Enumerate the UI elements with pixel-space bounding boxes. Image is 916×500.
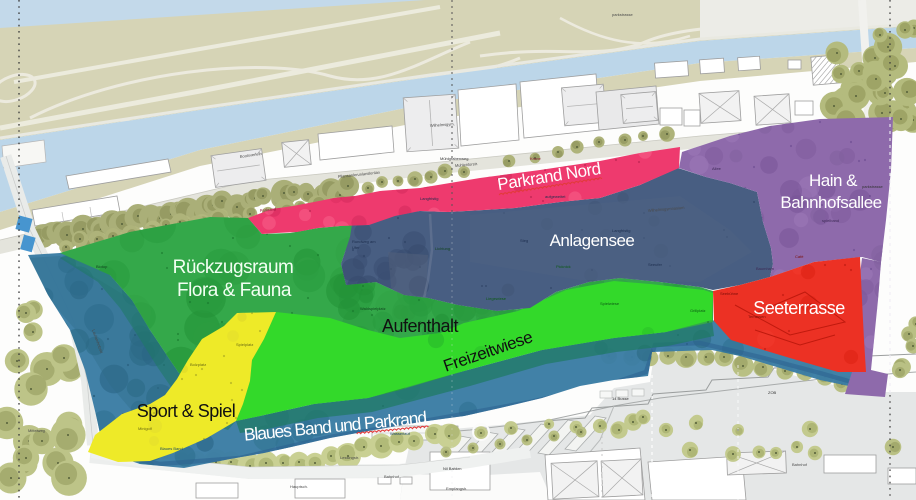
svg-text:Ufer: Ufer [352, 245, 360, 250]
svg-text:Nil Bahkrn: Nil Bahkrn [443, 466, 461, 471]
svg-text:14 Busse: 14 Busse [612, 396, 629, 401]
svg-text:Bahnhofsallee: Bahnhofsallee [780, 193, 881, 212]
svg-text:Flora & Fauna: Flora & Fauna [177, 280, 292, 301]
svg-text:Liegewiese: Liegewiese [486, 296, 507, 301]
svg-text:Langfristig: Langfristig [420, 196, 438, 201]
svg-text:Aufenthalt: Aufenthalt [382, 316, 459, 336]
svg-text:Bolzplatz: Bolzplatz [190, 362, 206, 367]
svg-text:aufgeweitet: aufgeweitet [545, 194, 566, 199]
svg-text:Baumhain: Baumhain [756, 266, 774, 271]
svg-text:Steg: Steg [520, 238, 528, 243]
svg-text:Picknick: Picknick [556, 264, 571, 269]
svg-text:Bahnhof: Bahnhof [384, 474, 400, 479]
svg-text:Biotop: Biotop [96, 264, 108, 269]
svg-text:Seebühne: Seebühne [720, 291, 739, 296]
svg-text:parkstrasse: parkstrasse [862, 184, 883, 189]
svg-text:spielband: spielband [822, 218, 839, 223]
svg-text:Hain &: Hain & [809, 171, 858, 190]
svg-text:Mittelweg: Mittelweg [28, 428, 45, 433]
svg-text:Lichtung: Lichtung [435, 246, 450, 251]
svg-text:Krone: Krone [530, 156, 541, 161]
svg-text:parkstrasse: parkstrasse [612, 12, 633, 17]
svg-text:Empfangsh.: Empfangsh. [446, 486, 467, 491]
svg-text:Waldspielplatz: Waldspielplatz [360, 306, 386, 311]
svg-text:Allee: Allee [712, 166, 722, 171]
svg-text:Seeterrasse: Seeterrasse [753, 298, 845, 318]
svg-text:Anlagensee: Anlagensee [550, 231, 635, 250]
svg-text:Grillplatz: Grillplatz [690, 308, 706, 313]
svg-text:Spielplatz: Spielplatz [236, 342, 253, 347]
svg-text:Minigolf: Minigolf [138, 426, 153, 431]
svg-text:Rundweg am: Rundweg am [352, 239, 376, 244]
svg-text:Spielwiese: Spielwiese [600, 301, 620, 306]
svg-text:Mühlgrabenweg: Mühlgrabenweg [440, 156, 468, 161]
svg-text:Blaues Band: Blaues Band [160, 446, 183, 451]
svg-text:ZOB: ZOB [768, 390, 777, 395]
svg-text:Hauptsch.: Hauptsch. [290, 484, 308, 489]
svg-text:Café: Café [795, 254, 804, 259]
svg-text:Seeufer: Seeufer [648, 262, 663, 267]
svg-text:Lessingstr.: Lessingstr. [340, 455, 359, 460]
svg-text:Rückzugsraum: Rückzugsraum [173, 257, 294, 278]
svg-text:Bahnhof: Bahnhof [792, 462, 808, 467]
svg-text:Wasserlauf: Wasserlauf [390, 431, 411, 436]
svg-text:Sport & Spiel: Sport & Spiel [137, 401, 236, 421]
